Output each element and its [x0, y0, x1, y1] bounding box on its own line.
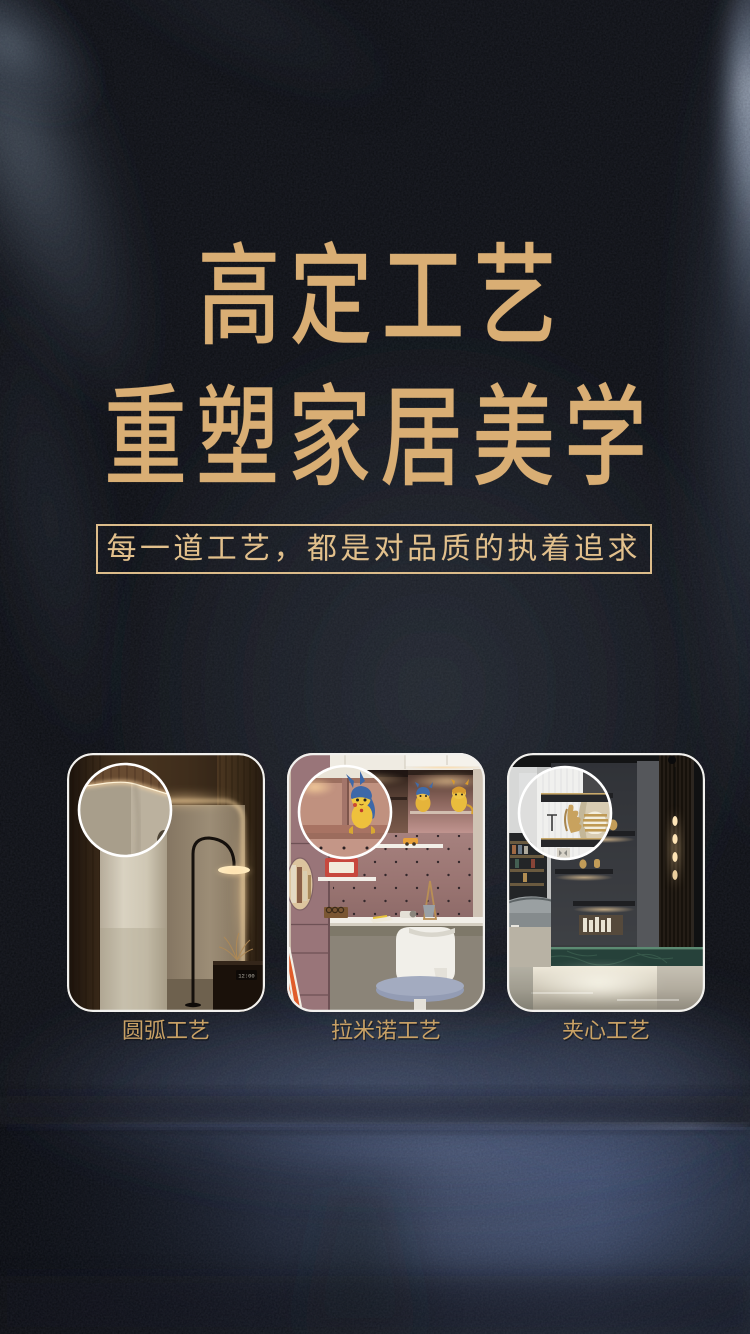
svg-text:12:00: 12:00	[238, 973, 255, 980]
